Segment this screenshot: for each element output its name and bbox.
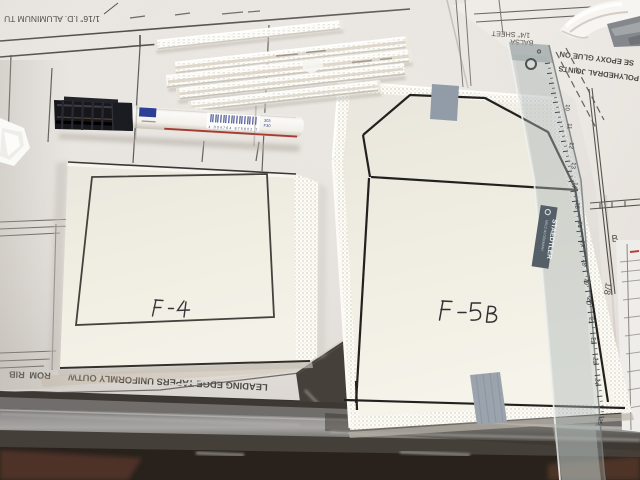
svg-text:10: 10	[563, 104, 570, 112]
svg-text:11: 11	[565, 123, 572, 130]
svg-text:13: 13	[569, 162, 576, 170]
svg-text:14: 14	[571, 182, 578, 190]
svg-text:F30: F30	[264, 123, 272, 128]
svg-text:12: 12	[567, 142, 574, 150]
svg-text:20: 20	[584, 297, 592, 306]
